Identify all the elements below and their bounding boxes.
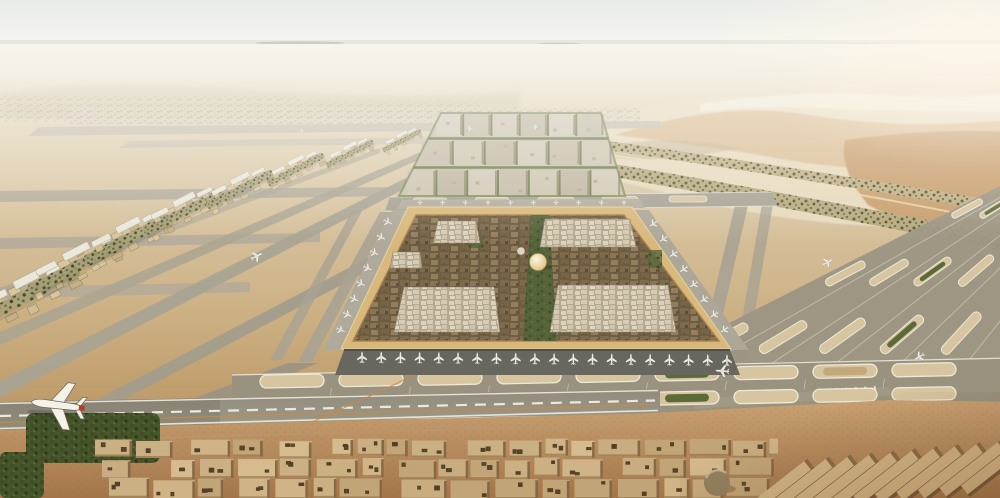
scene-svg [0,0,1000,498]
aerial-render: Aerial architectural rendering of a vast… [0,0,1000,498]
terminal-gate-apron [335,350,740,375]
small-dome [517,247,525,255]
